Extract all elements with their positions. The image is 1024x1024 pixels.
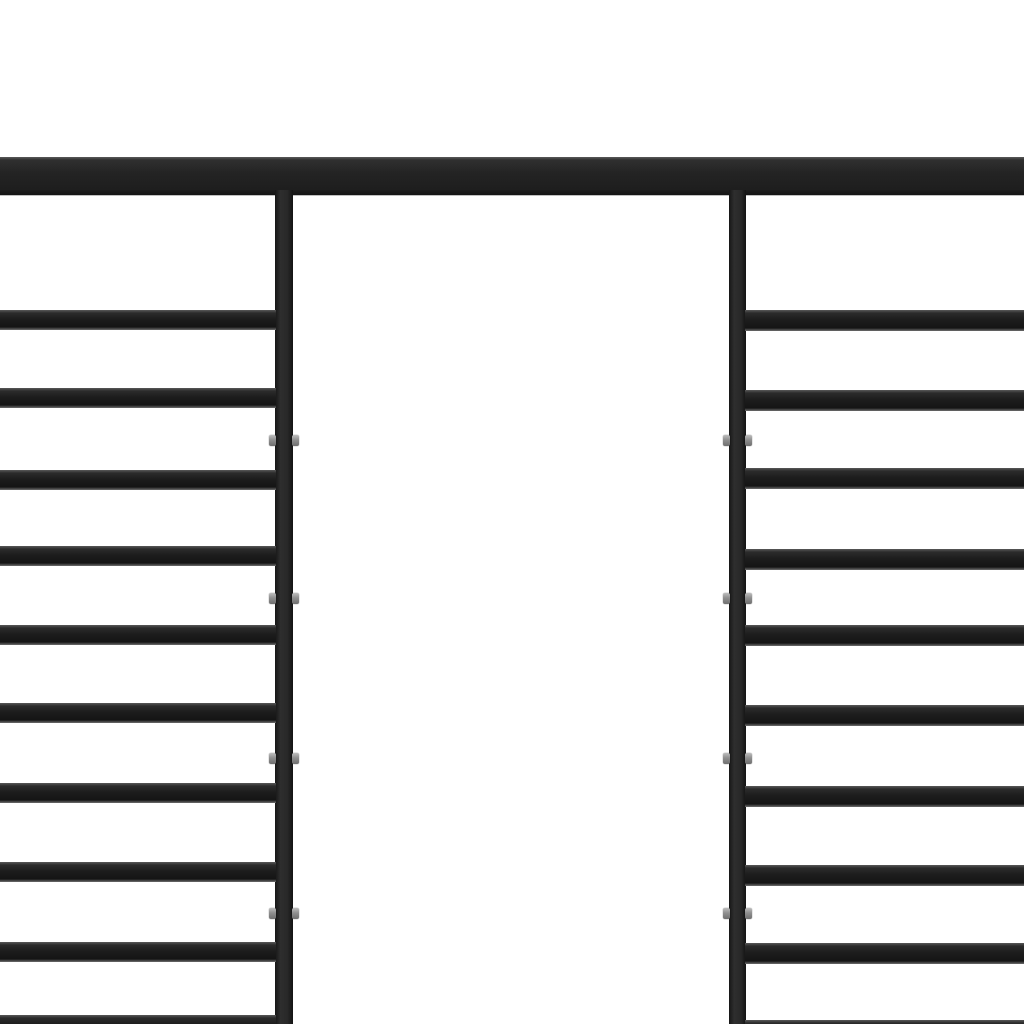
right-post-bolt-2-right-nub [745, 593, 752, 604]
left-post-bolt-3-right-nub [292, 753, 299, 764]
top-beam [0, 157, 1024, 195]
right-slat-9 [745, 943, 1024, 964]
left-post-bolt-1-left-nub [269, 435, 276, 446]
right-post-bolt-3-left-nub [723, 753, 730, 764]
right-slat-8 [745, 865, 1024, 886]
left-post-bolt-4-right-nub [292, 908, 299, 919]
left-slat-4 [0, 546, 276, 566]
left-slat-8 [0, 862, 276, 882]
left-slat-10 [0, 1015, 276, 1024]
right-slat-6 [745, 705, 1024, 726]
left-slat-6 [0, 703, 276, 723]
right-post-bolt-4-left-nub [723, 908, 730, 919]
right-slat-7 [745, 786, 1024, 807]
right-slat-1 [745, 310, 1024, 331]
right-slat-4 [745, 549, 1024, 570]
left-post-bolt-1-right-nub [292, 435, 299, 446]
left-slat-9 [0, 942, 276, 962]
pergola-product-photo [0, 0, 1024, 1024]
left-post-bolt-4-left-nub [269, 908, 276, 919]
right-slat-10 [745, 1020, 1024, 1024]
left-post-bolt-3-left-nub [269, 753, 276, 764]
left-slat-1 [0, 310, 276, 330]
left-slat-5 [0, 625, 276, 645]
right-post-bolt-1-left-nub [723, 435, 730, 446]
left-post-bolt-2-right-nub [292, 593, 299, 604]
right-post-bolt-2-left-nub [723, 593, 730, 604]
right-slat-5 [745, 625, 1024, 646]
left-post [275, 190, 293, 1024]
right-post [729, 190, 746, 1024]
left-slat-7 [0, 783, 276, 803]
left-slat-3 [0, 470, 276, 490]
right-post-bolt-3-right-nub [745, 753, 752, 764]
left-post-bolt-2-left-nub [269, 593, 276, 604]
right-slat-3 [745, 468, 1024, 489]
left-slat-2 [0, 388, 276, 408]
right-slat-2 [745, 390, 1024, 411]
right-post-bolt-1-right-nub [745, 435, 752, 446]
right-post-bolt-4-right-nub [745, 908, 752, 919]
